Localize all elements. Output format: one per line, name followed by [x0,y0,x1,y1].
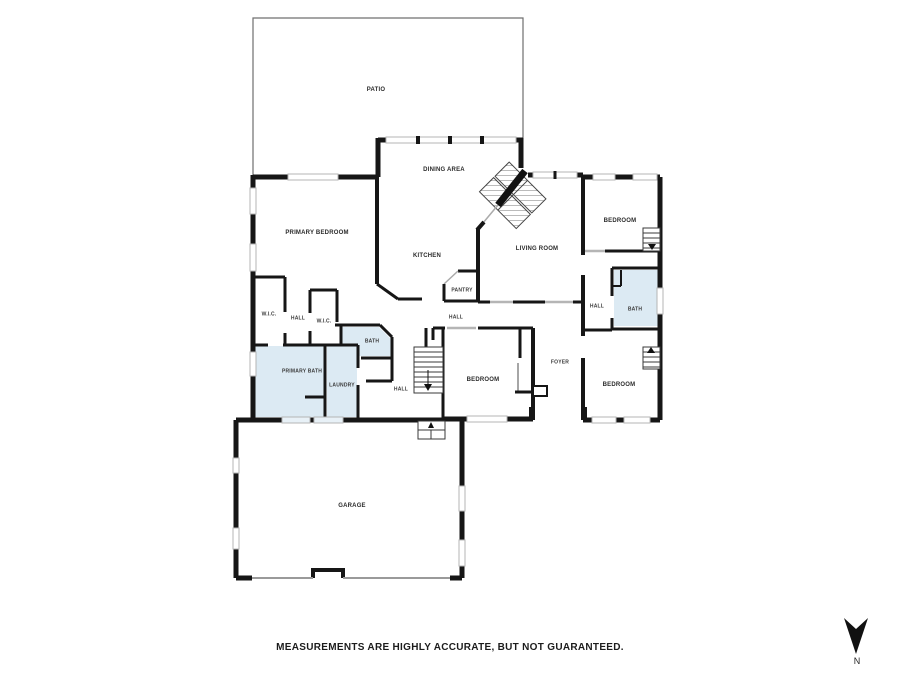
garage-entry-steps [418,421,445,439]
room-label-hall-kitchen: HALL [449,316,463,321]
room-label-hall-bath: BATH [365,340,379,345]
room-label-primary-bath: PRIMARY BATH [282,370,322,375]
floor-plan-page: PATIO DINING AREA PRIMARY BEDROOM KITCHE… [0,0,900,675]
compass: N [832,612,882,670]
room-label-foyer: FOYER [551,361,569,366]
room-label-hall-right: HALL [590,305,604,310]
primary-bath-area [254,346,324,417]
room-label-dining-area: DINING AREA [423,167,465,173]
floor-plan-drawing [0,0,900,675]
room-label-primary-bedroom: PRIMARY BEDROOM [285,230,348,236]
room-label-bedroom-1: BEDROOM [604,218,637,224]
room-label-bedroom-3: BEDROOM [603,382,636,388]
room-label-bath-right: BATH [628,308,642,313]
room-label-pantry: PANTRY [451,289,472,294]
room-label-kitchen: KITCHEN [413,253,441,259]
stairs-lower-right [643,347,660,369]
room-label-wic-2: W.I.C. [317,320,332,325]
room-label-garage: GARAGE [338,503,366,509]
room-label-patio: PATIO [367,87,385,93]
disclaimer-text: MEASUREMENTS ARE HIGHLY ACCURATE, BUT NO… [0,642,900,653]
laundry-area [327,346,357,417]
north-arrow-icon [832,612,882,656]
stairs-hall [414,347,443,393]
room-label-living-room: LIVING ROOM [516,246,559,252]
patio-outline [253,18,523,175]
room-label-bedroom-2: BEDROOM [467,377,500,383]
north-label: N [832,656,882,666]
room-label-hall-small: HALL [291,317,305,322]
room-label-hall-lower: HALL [394,388,408,393]
room-label-wic-1: W.I.C. [262,313,277,318]
room-label-laundry: LAUNDRY [329,384,355,389]
stairs-upper-right [643,228,660,251]
